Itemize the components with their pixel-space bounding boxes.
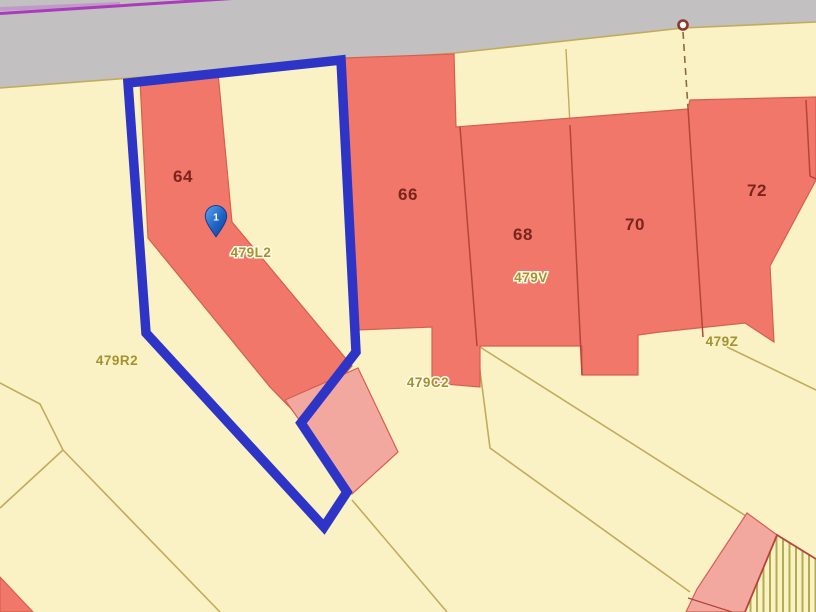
parcel-label-479R2: 479R2 bbox=[96, 353, 138, 368]
building-label-66: 66 bbox=[398, 185, 418, 204]
parcel-map-canvas[interactable]: 64 66 68 70 72 479L2 479R2 479C2 479V 47… bbox=[0, 0, 816, 612]
location-pin-number: 1 bbox=[213, 212, 219, 224]
building-label-70: 70 bbox=[625, 215, 645, 234]
building-label-72: 72 bbox=[747, 181, 767, 200]
parcel-label-479C2: 479C2 bbox=[407, 375, 449, 390]
parcel-label-479L2: 479L2 bbox=[231, 245, 272, 260]
parcel-label-479V: 479V bbox=[514, 270, 548, 285]
parcel-label-479Z: 479Z bbox=[706, 334, 739, 349]
building-label-64: 64 bbox=[173, 167, 193, 186]
boundary-vertex-marker[interactable] bbox=[679, 21, 688, 30]
map-viewport[interactable]: 64 66 68 70 72 479L2 479R2 479C2 479V 47… bbox=[0, 0, 816, 612]
building-label-68: 68 bbox=[513, 225, 533, 244]
